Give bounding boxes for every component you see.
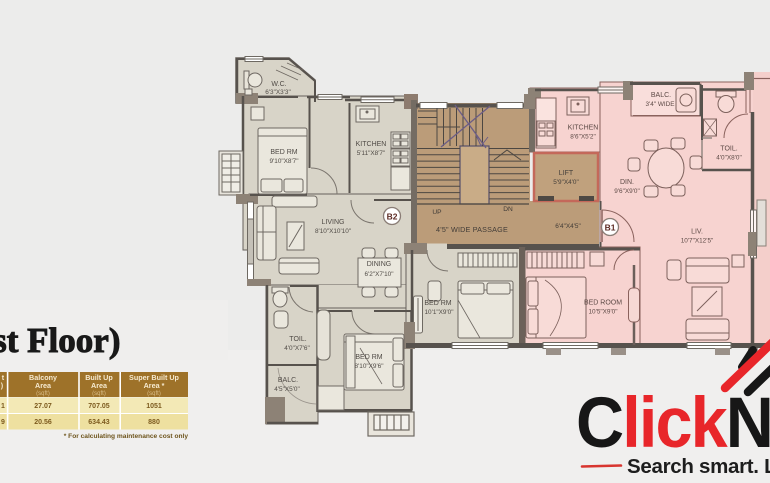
svg-text:Search smart. L: Search smart. L [627,455,770,478]
svg-text:6'3"X3'3": 6'3"X3'3" [265,89,290,96]
svg-text:5'9"X4'0": 5'9"X4'0" [553,179,578,186]
svg-text:DIN.: DIN. [620,179,634,186]
svg-text:9'10"X8'7": 9'10"X8'7" [269,158,298,165]
svg-text:880: 880 [148,419,160,426]
svg-text:(sqft): (sqft) [92,391,106,397]
svg-text:3'4" WIDE: 3'4" WIDE [645,101,674,108]
svg-text:Area: Area [91,381,108,390]
svg-text:DN: DN [503,206,513,213]
svg-text:27.07: 27.07 [34,403,52,410]
svg-text:20.56: 20.56 [34,419,52,426]
svg-text:4'5"X5'0": 4'5"X5'0" [274,386,299,393]
svg-text:KITCHEN: KITCHEN [568,125,599,132]
svg-text:UP: UP [432,209,442,216]
svg-text:TOIL.: TOIL. [720,146,737,153]
svg-text:KITCHEN: KITCHEN [356,141,387,148]
svg-text:6'4"X4'5": 6'4"X4'5" [555,223,580,230]
svg-text:Area: Area [35,381,52,390]
svg-text:LIFT: LIFT [559,170,574,177]
svg-text:10'5"X9'0": 10'5"X9'0" [588,309,617,316]
svg-text:8'6"X5'2": 8'6"X5'2" [570,134,595,141]
svg-text:(1st Floor): (1st Floor) [0,321,120,360]
svg-text:LIVING: LIVING [322,219,345,226]
svg-text:5'11"X8'7": 5'11"X8'7" [357,150,386,157]
svg-text:8'10"X9'6": 8'10"X9'6" [354,363,383,370]
svg-text:(sqft): (sqft) [36,391,50,397]
svg-text:B2: B2 [387,212,398,222]
svg-text:4'5" WIDE PASSAGE: 4'5" WIDE PASSAGE [436,225,508,234]
svg-text:BALC.: BALC. [651,92,671,99]
svg-text:1051: 1051 [146,403,162,410]
svg-text:4'0"X7'6": 4'0"X7'6" [284,345,309,352]
svg-text:TOIL.: TOIL. [289,336,306,343]
svg-text:BED RM: BED RM [270,149,297,156]
svg-text:DINING: DINING [367,261,392,268]
svg-text:1: 1 [1,403,5,410]
svg-text:10'1"X9'0": 10'1"X9'0" [424,309,453,316]
svg-text:* For calculating maintenance: * For calculating maintenance cost only [64,433,189,440]
svg-text:BED ROOM: BED ROOM [584,300,622,307]
svg-text:707.05: 707.05 [88,403,110,410]
svg-text:W.C.: W.C. [271,81,286,88]
svg-text:BALC.: BALC. [278,377,298,384]
svg-text:Area *: Area * [144,381,165,390]
svg-text:BED RM: BED RM [424,300,451,307]
svg-text:BED RM: BED RM [355,354,382,361]
svg-text:6'2"X7'10": 6'2"X7'10" [364,271,393,278]
svg-text:9'6"X9'0": 9'6"X9'0" [614,188,639,195]
svg-text:634.43: 634.43 [88,419,110,426]
svg-text:9: 9 [1,419,5,426]
svg-text:8'10"X10'10": 8'10"X10'10" [315,228,351,235]
svg-text:(sqft): (sqft) [147,391,161,397]
svg-text:10'7"X12'5": 10'7"X12'5" [681,238,714,245]
svg-text:ClickN: ClickN [576,384,770,463]
svg-text:4'0"X8'0": 4'0"X8'0" [716,155,741,162]
svg-text:LIV.: LIV. [691,229,703,236]
svg-text:B1: B1 [605,223,616,233]
